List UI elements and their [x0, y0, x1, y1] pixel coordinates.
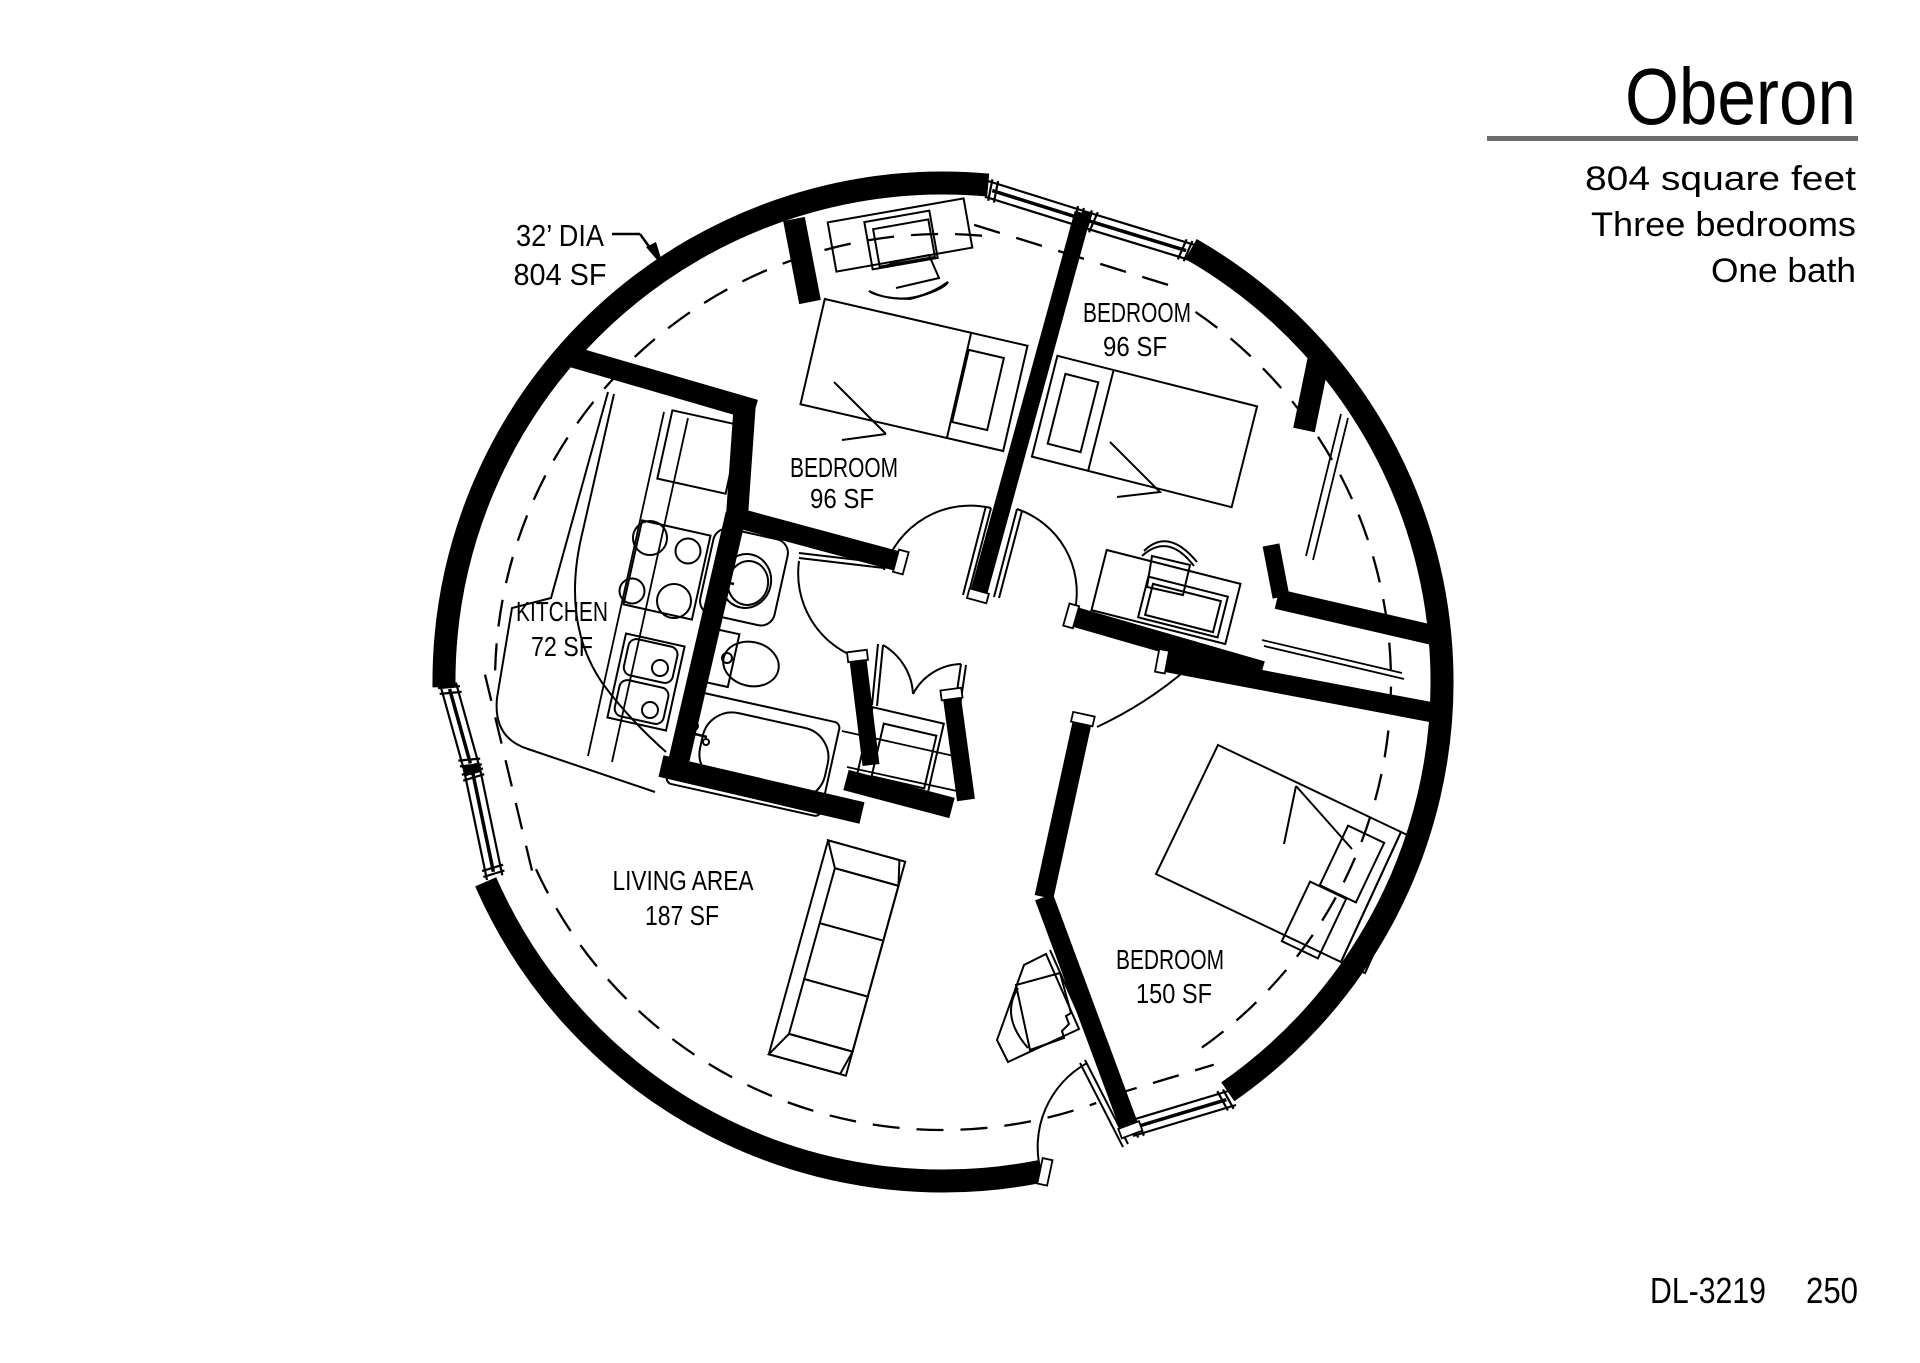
svg-text:72 SF: 72 SF	[531, 631, 593, 662]
svg-text:Oberon: Oberon	[1625, 52, 1856, 141]
svg-text:96 SF: 96 SF	[810, 483, 874, 514]
svg-text:KITCHEN: KITCHEN	[516, 596, 608, 627]
svg-text:187 SF: 187 SF	[645, 900, 719, 931]
svg-text:150 SF: 150 SF	[1136, 978, 1212, 1009]
svg-text:LIVING AREA: LIVING AREA	[613, 865, 754, 896]
svg-text:250: 250	[1806, 1270, 1858, 1311]
svg-text:Three bedrooms: Three bedrooms	[1591, 206, 1856, 244]
svg-text:BEDROOM: BEDROOM	[790, 452, 898, 483]
svg-text:32’ DIA: 32’ DIA	[516, 218, 604, 253]
svg-text:One bath: One bath	[1711, 252, 1856, 290]
svg-text:804 square feet: 804 square feet	[1585, 160, 1857, 198]
svg-text:DL-3219: DL-3219	[1650, 1270, 1766, 1311]
svg-text:BEDROOM: BEDROOM	[1083, 297, 1191, 328]
svg-text:96 SF: 96 SF	[1103, 331, 1167, 362]
svg-text:804 SF: 804 SF	[514, 257, 607, 292]
svg-text:BEDROOM: BEDROOM	[1116, 944, 1224, 975]
